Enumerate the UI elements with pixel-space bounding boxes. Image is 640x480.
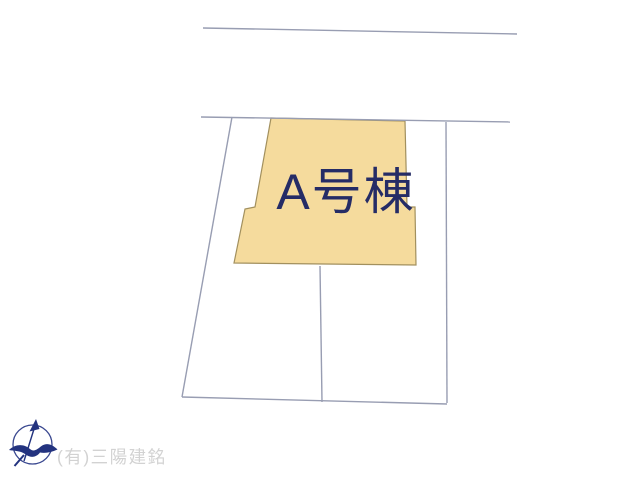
boundary-bottom <box>182 397 447 404</box>
compass-tail-stroke <box>15 455 25 466</box>
road-edge-top <box>203 28 517 34</box>
boundary-right <box>446 122 447 403</box>
boundary-left <box>182 117 232 397</box>
company-watermark: (有)三陽建銘 <box>57 447 167 467</box>
site-plan-canvas: A号棟 (有)三陽建銘 <box>0 0 640 480</box>
lot-divider <box>320 266 322 402</box>
building-label: A号棟 <box>276 164 415 220</box>
compass-north-icon <box>9 419 58 466</box>
site-plan-svg: A号棟 (有)三陽建銘 <box>0 0 640 480</box>
